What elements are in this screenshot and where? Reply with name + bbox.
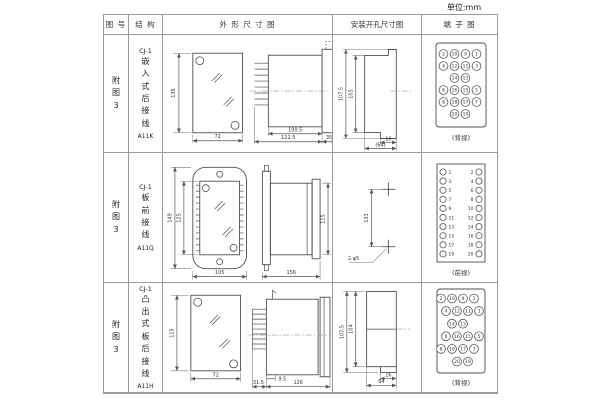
dim-depth-total: 122.5 [281,135,295,141]
install-drawing-a11q: 133 2-φ5 [333,153,421,283]
figure-no-cell: 附 图 3 [104,153,129,283]
model-code: A11Q [137,245,153,252]
svg-text:14: 14 [468,224,474,230]
outline-drawing-a11h: 115 72 9.5 31.5 126 [163,283,332,393]
dim-width: 105 [215,270,224,276]
dim-flange: 35 [326,135,332,141]
install-drawing-a11h: 107.5 104 16 64 [333,283,421,393]
dim-width: 72 [215,134,221,140]
dim-inner: 104 [348,324,354,333]
figure-no: 附 图 3 [112,199,120,236]
svg-text:16: 16 [452,87,458,93]
svg-text:7: 7 [473,346,476,352]
figure-no: 附 图 3 [112,75,120,112]
svg-text:13: 13 [449,224,455,230]
view-label: (前视) [452,268,470,277]
install-drawing-a11k: 107.5 105 16 (64) [333,35,421,153]
hole-callout: 2-φ5 [348,256,359,262]
svg-text:10: 10 [452,51,458,57]
svg-text:11: 11 [449,215,455,221]
svg-text:2: 2 [442,51,445,57]
terminal-diagram-a11h: 2109141211314136161558181772019 (背视) [422,283,497,393]
svg-text:3: 3 [478,308,481,314]
outline-drawing-a11q: 149 125 105 156 115 [163,153,332,283]
svg-text:5: 5 [449,188,452,194]
header-terminal-diagram: 端 子 图 [422,15,497,35]
dim-width: 64 [378,378,384,384]
dim-tab: 16 [385,372,391,378]
svg-text:19: 19 [463,111,469,117]
install-drawing-cell: 107.5 104 16 64 [333,283,422,393]
terminal-circles: 2109141211314136161558181772019 [437,294,484,366]
model-code: A11K [138,133,154,140]
relay-series: CJ-1 [139,183,152,191]
svg-text:7: 7 [449,197,452,203]
side-view: 156 115 [262,165,331,279]
svg-text:6: 6 [442,87,445,93]
dim-depth: 156 [286,270,295,276]
svg-text:1: 1 [473,296,476,302]
svg-text:7: 7 [475,99,478,105]
svg-text:12: 12 [468,215,474,221]
svg-text:18: 18 [468,242,474,248]
terminal-drawing-cell: 1234567891011121314151617181920 (前视) [422,153,497,283]
structure-cell: CJ-1 嵌 入 式 后 接 线 A11K [129,35,163,153]
svg-text:4: 4 [442,63,445,69]
dimension-table: 图 号 结 构 外 形 尺 寸 图 安装开孔尺寸图 端 子 图 附 图 3 CJ… [103,14,498,394]
dim-tab: 16 [385,136,391,142]
svg-text:9: 9 [449,206,452,212]
dim-outer: 107.5 [339,324,345,338]
svg-text:17: 17 [449,242,455,248]
front-view: 115 72 [169,295,240,381]
svg-text:10: 10 [449,296,455,302]
install-drawing-cell: 107.5 105 16 (64) [333,35,422,153]
relay-series: CJ-1 [139,285,152,293]
side-view: 100.5 122.5 35 [250,41,332,143]
svg-text:5: 5 [475,87,478,93]
terminal-diagram-a11q: 1234567891011121314151617181920 (前视) [422,153,497,283]
side-view: 9.5 31.5 126 [248,290,330,388]
datasheet-page: 单位:mm 图 号 结 构 外 形 尺 寸 图 安装开孔尺寸图 端 子 图 附 … [0,0,600,400]
header-install-holes: 安装开孔尺寸图 [333,15,422,35]
header-structure: 结 构 [129,15,163,35]
figure-no-cell: 附 图 3 [104,35,129,153]
dim-comb: 31.5 [253,380,264,386]
structure-cell: CJ-1 凸 出 式 板 后 接 线 A11H [129,283,163,393]
svg-text:11: 11 [463,63,469,69]
front-view: 135 72 [171,53,243,142]
svg-text:14: 14 [452,75,458,81]
svg-text:11: 11 [465,308,471,314]
svg-text:9: 9 [462,296,465,302]
dim-height: 115 [169,328,175,337]
svg-text:8: 8 [440,346,443,352]
svg-text:16: 16 [454,333,460,339]
svg-text:16: 16 [468,233,474,239]
svg-text:10: 10 [468,206,474,212]
svg-text:3: 3 [449,178,452,184]
svg-text:1: 1 [449,169,452,175]
svg-text:8: 8 [471,197,474,203]
outline-drawing-cell: 149 125 105 156 115 [163,153,333,283]
dim-height: 149 [167,213,173,222]
svg-text:20: 20 [468,251,474,257]
svg-text:4: 4 [445,308,448,314]
svg-text:13: 13 [463,75,469,81]
dim-height: 135 [171,88,177,97]
svg-text:20: 20 [454,359,460,365]
dim-hole-spacing: 133 [364,213,370,222]
svg-text:1: 1 [475,51,478,57]
view-label: (背视) [452,133,470,142]
svg-text:15: 15 [449,233,455,239]
mount-type: 嵌 入 式 后 接 线 [142,56,150,130]
svg-text:2: 2 [440,296,443,302]
install-drawing-cell: 133 2-φ5 [333,153,422,283]
svg-text:19: 19 [465,359,471,365]
dim-side-height: 115 [321,214,327,223]
svg-text:20: 20 [452,111,458,117]
svg-text:4: 4 [471,178,474,184]
unit-label: 单位:mm [428,2,500,13]
dim-offset: 9.5 [278,376,286,382]
outline-drawing-cell: 135 72 100.5 122.5 35 [163,35,333,153]
view-label: (背视) [452,378,470,387]
svg-text:5: 5 [478,333,481,339]
svg-text:9: 9 [464,51,467,57]
svg-text:12: 12 [452,63,458,69]
dim-depth: 126 [293,380,302,386]
outline-drawing-a11k: 135 72 100.5 122.5 35 [163,35,332,153]
dim-outer: 107.5 [338,86,344,100]
svg-text:8: 8 [442,99,445,105]
svg-text:19: 19 [449,251,455,257]
svg-text:13: 13 [460,321,466,327]
front-view: 149 125 105 [167,167,246,279]
dim-inner-height: 125 [176,213,182,222]
dim-width: 72 [213,372,219,378]
svg-text:18: 18 [449,346,455,352]
outline-drawing-cell: 115 72 9.5 31.5 126 [163,283,333,393]
terminal-drawing-cell: 2109141211314136161558181772019 (背视) [422,35,497,153]
model-code: A11H [137,383,153,390]
mount-type: 板 前 接 线 [142,192,150,242]
svg-text:6: 6 [445,333,448,339]
terminal-circles: 1234567891011121314151617181920 [440,168,482,257]
svg-text:15: 15 [465,333,471,339]
svg-text:17: 17 [463,99,469,105]
svg-text:3: 3 [475,63,478,69]
mount-type: 凸 出 式 板 后 接 线 [142,294,150,381]
svg-text:15: 15 [463,87,469,93]
svg-text:17: 17 [460,346,466,352]
dim-inner: 105 [348,89,354,98]
header-outline-dims: 外 形 尺 寸 图 [163,15,333,35]
header-figure-no: 图 号 [104,15,129,35]
relay-series: CJ-1 [139,47,152,55]
figure-no-cell: 附 图 3 [104,283,129,393]
figure-no: 附 图 3 [112,319,120,356]
terminal-drawing-cell: 2109141211314136161558181772019 (背视) [422,283,497,393]
structure-cell: CJ-1 板 前 接 线 A11Q [129,153,163,283]
terminal-diagram-a11k: 2109141211314136161558181772019 (背视) [422,35,497,153]
terminal-circles: 2109141211314136161558181772019 [439,49,481,118]
svg-text:12: 12 [454,308,460,314]
svg-text:14: 14 [449,321,455,327]
svg-text:2: 2 [471,169,474,175]
svg-text:18: 18 [452,99,458,105]
dim-width: (64) [375,142,385,148]
dim-depth: 100.5 [288,127,302,133]
svg-text:6: 6 [471,188,474,194]
